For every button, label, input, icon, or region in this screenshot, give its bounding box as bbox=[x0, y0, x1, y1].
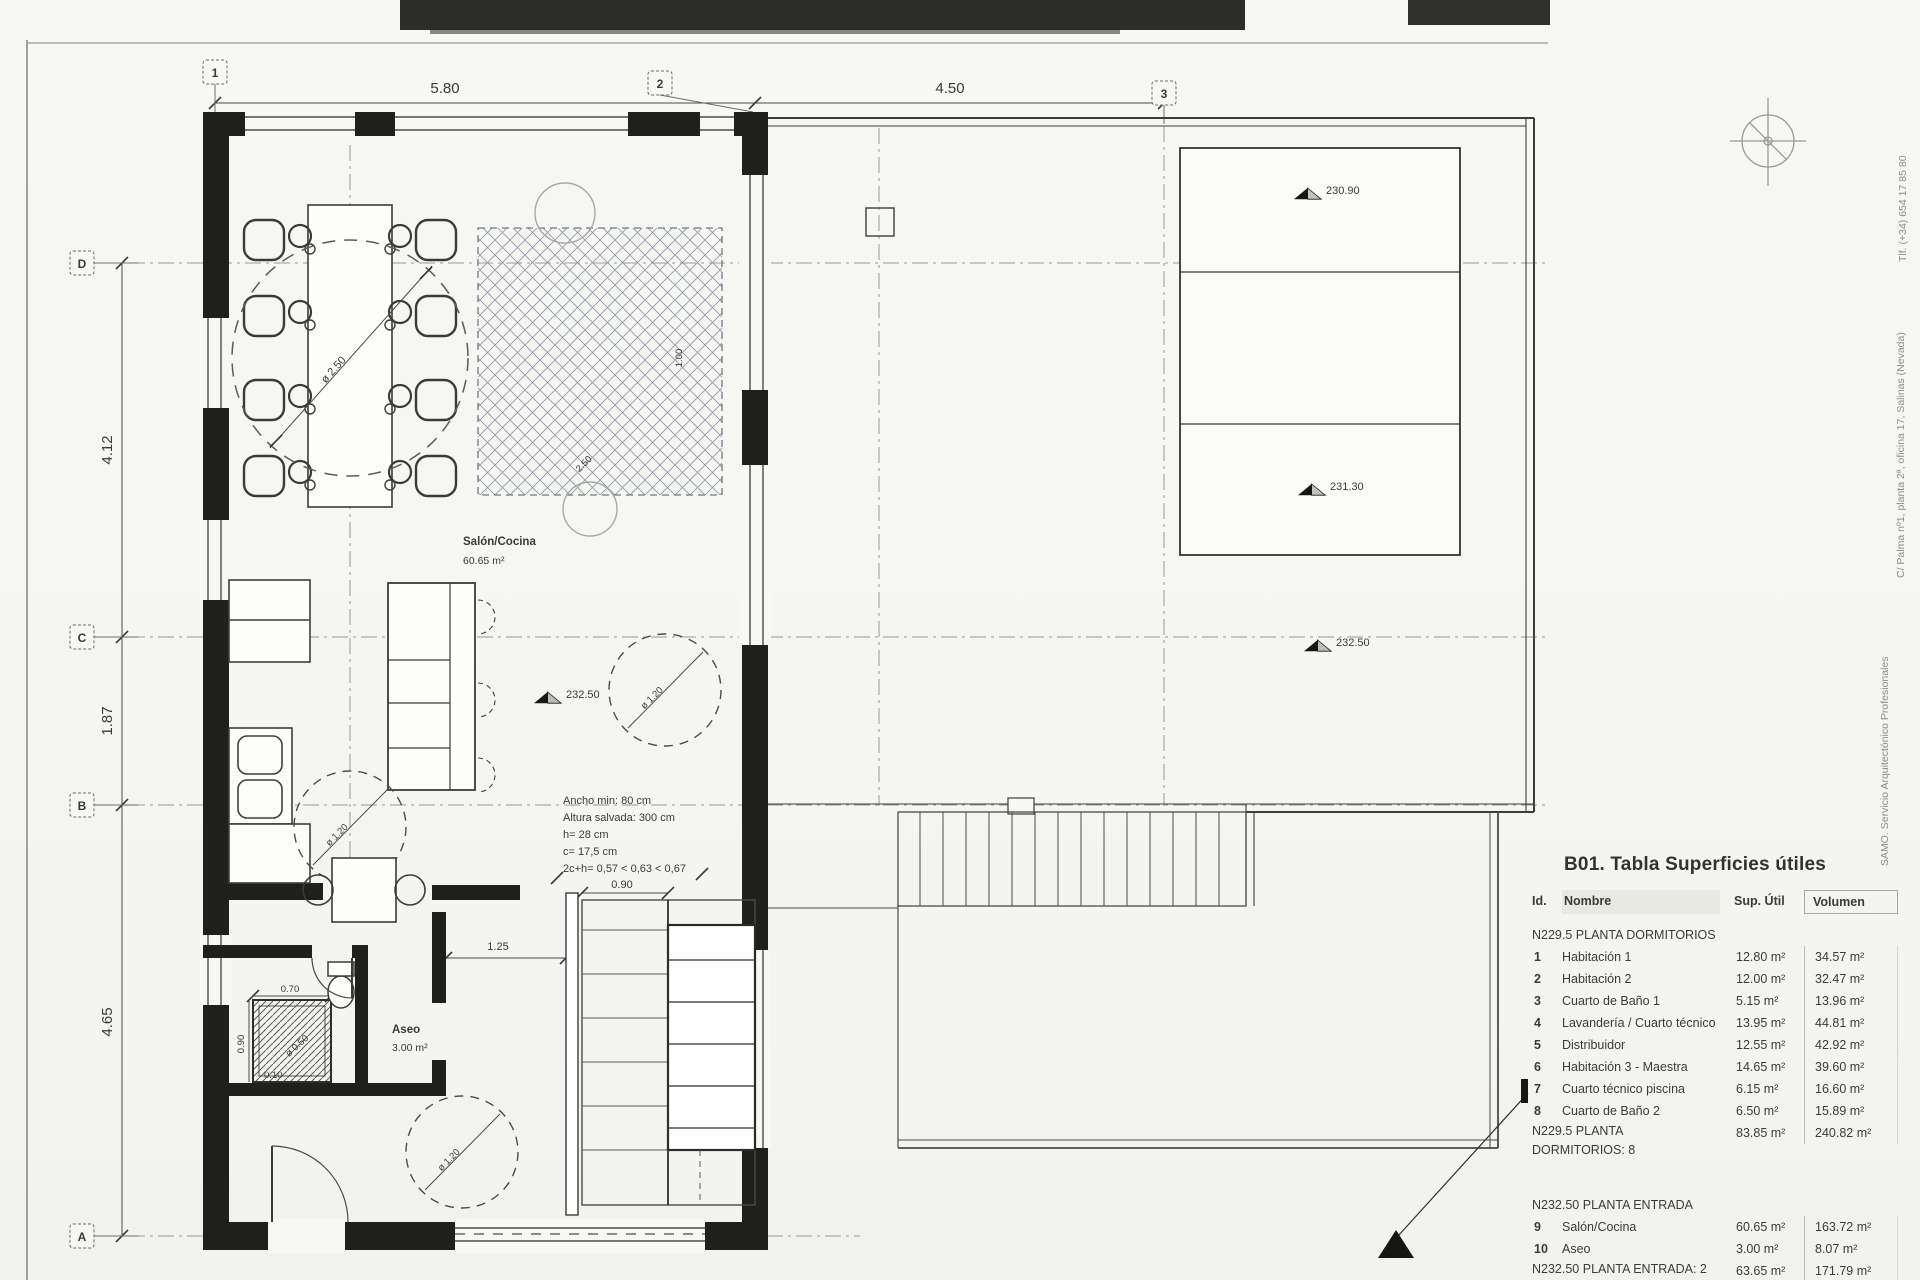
kitchen-counter bbox=[229, 580, 310, 883]
margin-firm: SAMO. Servicio Arquitectónico Profesiona… bbox=[1879, 656, 1891, 866]
interior-stair bbox=[551, 868, 755, 1215]
svg-text:c= 17,5 cm: c= 17,5 cm bbox=[563, 846, 617, 858]
compass-icon bbox=[1730, 98, 1806, 186]
terrace-column bbox=[866, 208, 894, 236]
dim-circle-120-c: ø 1.20 bbox=[436, 1147, 463, 1174]
dim-height-3: 4.65 bbox=[99, 1007, 116, 1036]
dim-shower-o: 0.10 bbox=[264, 1070, 283, 1081]
table-row: 3Cuarto de Baño 15.15 m²13.96 m² bbox=[1518, 990, 1910, 1012]
entrance-door bbox=[272, 1146, 348, 1222]
exterior-stair bbox=[898, 812, 1246, 906]
dining-table bbox=[308, 205, 392, 507]
dim-width-2: 4.50 bbox=[935, 80, 964, 97]
level-marker-salon: 232.50 bbox=[534, 689, 600, 703]
stair-note: Ancho min: 80 cm Altura salvada: 300 cm … bbox=[563, 795, 686, 875]
level-marker-terrace: 232.50 bbox=[1304, 637, 1370, 651]
scan-dark-blob bbox=[1408, 0, 1550, 25]
svg-text:Ancho min: 80 cm: Ancho min: 80 cm bbox=[563, 795, 651, 807]
svg-text:230.90: 230.90 bbox=[1326, 185, 1360, 197]
header-sup-util: Sup. Útil bbox=[1720, 890, 1802, 914]
header-id: Id. bbox=[1518, 890, 1562, 914]
svg-text:231.30: 231.30 bbox=[1330, 481, 1364, 493]
room-label-salon: Salón/Cocina bbox=[463, 536, 536, 548]
grid-row-c: C bbox=[78, 631, 87, 645]
bathroom: 0.70 0.90 ø 0.50 0.10 Aseo 3.00 m² bbox=[236, 958, 428, 1082]
pool: 230.90 231.30 232.50 bbox=[1180, 148, 1460, 651]
table-row: 2Habitación 212.00 m²32.47 m² bbox=[1518, 968, 1910, 990]
north-triangle-icon bbox=[1378, 1230, 1414, 1258]
header-nombre: Nombre bbox=[1562, 890, 1720, 914]
scanned-floor-plan-sheet: 5.80 4.50 4.12 1.87 4.65 1.25 0.90 1 2 3… bbox=[0, 0, 1920, 1280]
table-title: B01. Tabla Superficies útiles bbox=[1564, 854, 1910, 876]
svg-text:h= 28 cm: h= 28 cm bbox=[563, 829, 609, 841]
section-label-dormitorios: N229.5 PLANTA DORMITORIOS bbox=[1518, 924, 1910, 946]
dim-shower-h: 0.90 bbox=[236, 1035, 247, 1054]
grid-row-a: A bbox=[78, 1230, 87, 1244]
dim-circle-120-a: ø 1.20 bbox=[639, 685, 666, 712]
table-row: 9Salón/Cocina60.65 m²163.72 m² bbox=[1518, 1216, 1910, 1238]
dim-hall: 1.25 bbox=[487, 941, 508, 953]
table-row: 6Habitación 3 - Maestra14.65 m²39.60 m² bbox=[1518, 1056, 1910, 1078]
svg-text:2c+h= 0,57 < 0,63 < 0,67: 2c+h= 0,57 < 0,63 < 0,67 bbox=[563, 863, 686, 875]
grid-col-2: 2 bbox=[657, 77, 664, 91]
section-label-entrada: N232.50 PLANTA ENTRADA bbox=[1518, 1194, 1910, 1216]
dining-set: ø 2.50 bbox=[232, 205, 468, 507]
margin-phone: Tlf. (+34) 654 17 85 80 bbox=[1897, 155, 1909, 262]
dim-shower-w: 0.70 bbox=[281, 984, 300, 995]
table-row: 5Distribuidor12.55 m²42.92 m² bbox=[1518, 1034, 1910, 1056]
subtotal-row-entrada: N232.50 PLANTA ENTRADA: 2 63.65 m² 171.7… bbox=[1518, 1260, 1910, 1280]
hatched-area: 2.50 1.00 bbox=[478, 183, 722, 536]
margin-address: C/ Palma nº1, planta 2ª, oficina 17, Sal… bbox=[1895, 332, 1907, 578]
table-row: 7Cuarto técnico piscina6.15 m²16.60 m² bbox=[1518, 1078, 1910, 1100]
table-row: 4Lavandería / Cuarto técnico13.95 m²44.8… bbox=[1518, 1012, 1910, 1034]
grid-row-b: B bbox=[78, 799, 87, 813]
dim-height-1: 4.12 bbox=[99, 435, 116, 464]
dim-width-1: 5.80 bbox=[430, 80, 459, 97]
subtotal-row-dormitorios: N229.5 PLANTA DORMITORIOS: 8 83.85 m² 24… bbox=[1518, 1122, 1910, 1160]
dim-rug-h: 1.00 bbox=[674, 349, 685, 368]
header-volumen: Volumen bbox=[1804, 890, 1898, 914]
surfaces-table: B01. Tabla Superficies útiles Id. Nombre… bbox=[1518, 854, 1910, 1280]
lower-patio bbox=[768, 812, 1498, 1148]
table-row: 1Habitación 112.80 m²34.57 m² bbox=[1518, 946, 1910, 968]
scan-dark-band bbox=[400, 0, 1245, 30]
table-leader bbox=[1378, 1079, 1528, 1258]
grid-row-d: D bbox=[78, 257, 87, 271]
room-area-salon: 60.65 m² bbox=[463, 555, 505, 567]
dim-stair-width: 0.90 bbox=[611, 879, 632, 891]
grid-col-1: 1 bbox=[212, 66, 219, 80]
dim-height-2: 1.87 bbox=[99, 706, 116, 735]
sofa bbox=[388, 583, 495, 792]
room-area-aseo: 3.00 m² bbox=[392, 1042, 428, 1054]
svg-text:Altura salvada: 300 cm: Altura salvada: 300 cm bbox=[563, 812, 675, 824]
table-row: 8Cuarto de Baño 26.50 m²15.89 m² bbox=[1518, 1100, 1910, 1122]
table-row: 10Aseo3.00 m²8.07 m² bbox=[1518, 1238, 1910, 1260]
table-header-row: Id. Nombre Sup. Útil Volumen bbox=[1518, 890, 1910, 914]
grid-col-3: 3 bbox=[1161, 87, 1168, 101]
room-label-aseo: Aseo bbox=[392, 1024, 420, 1036]
dim-circle-120-b: ø 1.20 bbox=[324, 822, 351, 849]
svg-text:232.50: 232.50 bbox=[566, 689, 600, 701]
svg-text:232.50: 232.50 bbox=[1336, 637, 1370, 649]
